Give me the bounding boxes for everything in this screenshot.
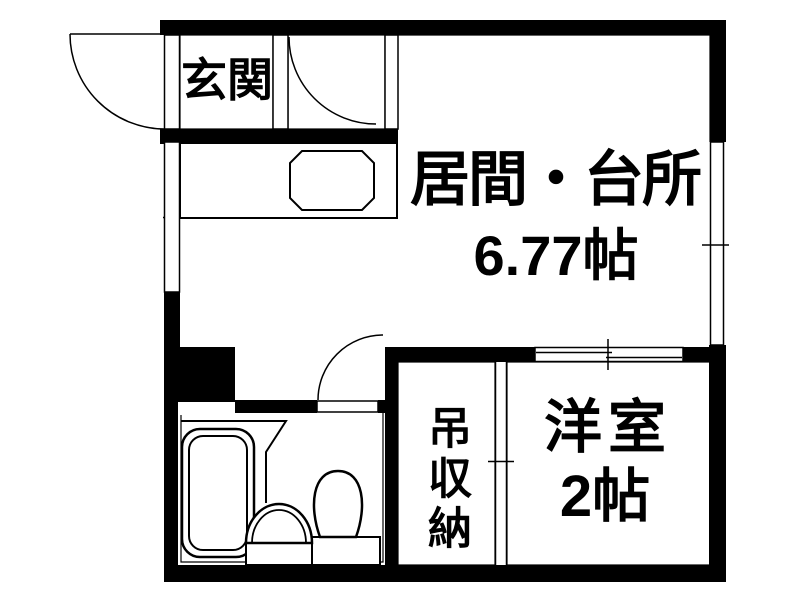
floor-plan: 玄関 居間・台所 6.77帖 吊収納 洋室 2帖 xyxy=(0,0,800,600)
wall-right-upper xyxy=(710,20,726,142)
wall-left-mid xyxy=(164,292,180,347)
sliding-door xyxy=(535,348,683,362)
bathroom-door-leaf xyxy=(317,401,378,412)
genkan-label: 玄関 xyxy=(170,57,284,103)
wall-right-lower xyxy=(709,345,726,582)
washbasin-pedestal xyxy=(246,543,312,565)
wall-bath-north xyxy=(235,400,317,413)
wall-left-lower xyxy=(164,402,178,565)
wall-top xyxy=(160,20,726,35)
ldk-doorway xyxy=(385,35,398,129)
bathroom-door-arc xyxy=(318,335,383,400)
left-window xyxy=(165,142,180,292)
utility-block xyxy=(164,347,235,402)
vanity-counter xyxy=(309,537,380,565)
toilet xyxy=(314,471,362,537)
wall-ldk-south-left xyxy=(390,347,535,362)
entrance-door-arc xyxy=(70,34,165,129)
wall-ldk-south-right xyxy=(683,347,711,362)
ldk-area-label: 6.77帖 xyxy=(406,228,706,284)
western-room-label: 洋室 xyxy=(508,399,708,457)
storage-label: 吊収納 xyxy=(421,392,469,567)
wall-bottom xyxy=(164,565,726,582)
western-room-area-label: 2帖 xyxy=(505,468,705,526)
kitchen-sink xyxy=(290,151,374,210)
interior-door-arc xyxy=(289,37,376,124)
bathtub-outer xyxy=(182,429,254,557)
ldk-label: 居間・台所 xyxy=(394,150,716,210)
wall-center-vertical xyxy=(385,347,398,565)
wall-genkan-south xyxy=(160,129,398,144)
